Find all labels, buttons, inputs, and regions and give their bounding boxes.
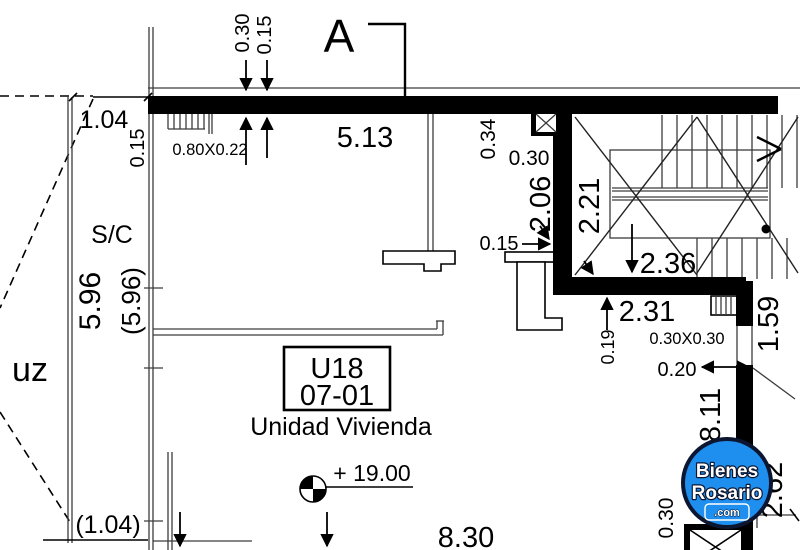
dim-1.04: 1.04 <box>80 106 129 134</box>
dim-5.13: 5.13 <box>337 122 393 154</box>
dim-0.30-mid: 0.30 <box>509 147 550 170</box>
column-marker-top <box>536 114 556 132</box>
section-marker-label: A <box>324 10 355 62</box>
dim-2.31: 2.31 <box>619 296 675 328</box>
dim-1.59: 1.59 <box>753 296 785 352</box>
light-well-partial-label: uz <box>12 351 48 389</box>
window-size-label: 0.80X0.22 <box>172 141 247 159</box>
watermark-logo: Bienes Rosario .com <box>681 437 773 529</box>
dim-0.30-bottom: 0.30 <box>655 498 678 539</box>
level-value: + 19.00 <box>333 460 410 486</box>
dim-8.11: 8.11 <box>695 388 727 442</box>
dim-8.30: 8.30 <box>438 522 494 550</box>
dim-0.30-top: 0.30 <box>232 14 254 53</box>
dim-1.04-paren: (1.04) <box>75 511 140 539</box>
logo-line3: .com <box>714 507 740 519</box>
unit-type-label: Unidad Vivienda <box>250 413 432 441</box>
dim-2.06: 2.06 <box>525 176 557 232</box>
dim-0.15-left: 0.15 <box>127 129 149 168</box>
floor-plan-drawing: A 1.04 0.80X0.22 5.13 0.30 0.15 2.36 2.3… <box>0 0 800 550</box>
dim-0.34: 0.34 <box>477 118 500 159</box>
column-size-label: 0.30X0.30 <box>649 330 724 348</box>
room-sc-label: S/C <box>91 221 133 249</box>
logo-line1: Bienes <box>696 461 758 482</box>
dim-0.15-wall: 0.15 <box>480 233 519 255</box>
unit-number: 07-01 <box>300 380 374 412</box>
dim-5.96-paren: (5.96) <box>116 267 146 335</box>
lower-steps-box <box>711 296 737 315</box>
floor-plan-page: A 1.04 0.80X0.22 5.13 0.30 0.15 2.36 2.3… <box>0 0 800 550</box>
dim-2.36: 2.36 <box>640 248 696 280</box>
stair-line-dot <box>762 225 771 234</box>
dim-0.15-top: 0.15 <box>254 16 276 55</box>
dim-5.96: 5.96 <box>74 272 107 330</box>
logo-line2: Rosario <box>692 483 763 504</box>
dim-2.21: 2.21 <box>574 178 606 234</box>
dim-0.20: 0.20 <box>658 359 697 381</box>
column-marker-bottom <box>687 527 744 550</box>
dim-0.19: 0.19 <box>598 329 618 364</box>
